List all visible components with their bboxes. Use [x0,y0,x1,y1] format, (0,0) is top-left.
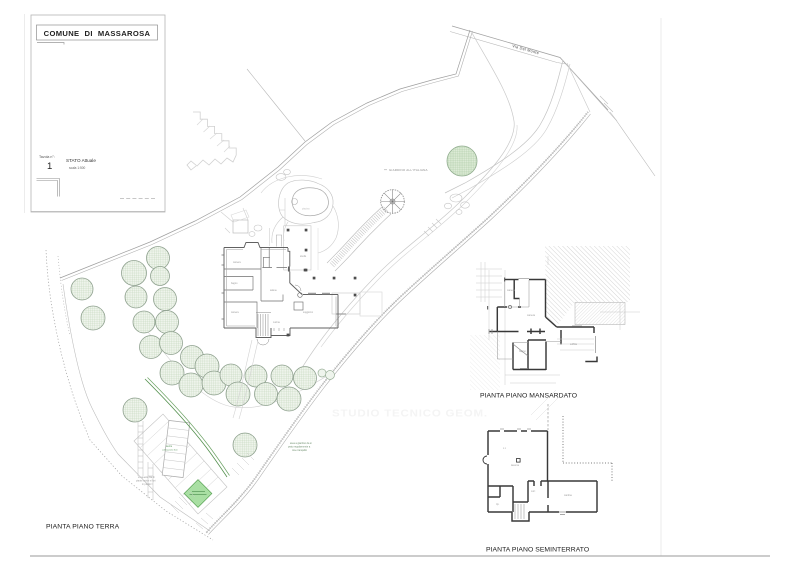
svg-text:studio: studio [300,255,307,258]
svg-text:coltivazione fiori: coltivazione fiori [162,449,178,452]
svg-text:GIARDINO ALL'ITALIANA: GIARDINO ALL'ITALIANA [389,168,428,172]
svg-text:STATO Attuale: STATO Attuale [66,158,96,163]
svg-text:serra: serra [166,444,172,448]
svg-text:rose tranquillo: rose tranquillo [292,449,308,452]
svg-text:bagno: bagno [519,350,526,353]
svg-text:COMUNE DI MASSAROSA: COMUNE DI MASSAROSA [44,29,151,38]
svg-text:in pieno: in pieno [142,483,151,486]
svg-text:1: 1 [47,161,52,172]
svg-text:c.t.: c.t. [503,447,507,450]
svg-text:Tavola n°:: Tavola n°: [39,155,55,159]
svg-text:PIANTA PIANO TERRA: PIANTA PIANO TERRA [46,524,120,531]
svg-text:rip.: rip. [496,503,500,506]
svg-text:piscina: piscina [302,208,310,211]
svg-text:cucina: cucina [273,322,280,324]
svg-text:PIANTA PIANO MANSARDATO: PIANTA PIANO MANSARDATO [480,393,577,400]
svg-text:bagno: bagno [231,283,238,285]
svg-text:salone: salone [270,290,277,292]
svg-text:STUDIO TECNICO GEOM.: STUDIO TECNICO GEOM. [332,408,488,419]
svg-text:taverna: taverna [511,464,520,467]
svg-text:cantina: cantina [564,494,572,497]
svg-text:soggiorno: soggiorno [303,311,314,314]
svg-text:camera: camera [507,289,516,292]
svg-text:camera: camera [233,261,241,264]
svg-text:PIANTA PIANO SEMINTERRATO: PIANTA PIANO SEMINTERRATO [486,547,589,554]
svg-text:camera: camera [527,314,536,317]
svg-text:camera: camera [231,311,239,314]
svg-text:soffitta: soffitta [570,343,578,346]
svg-text:scala 1:500: scala 1:500 [69,166,86,170]
svg-text:corr.: corr. [531,490,536,493]
